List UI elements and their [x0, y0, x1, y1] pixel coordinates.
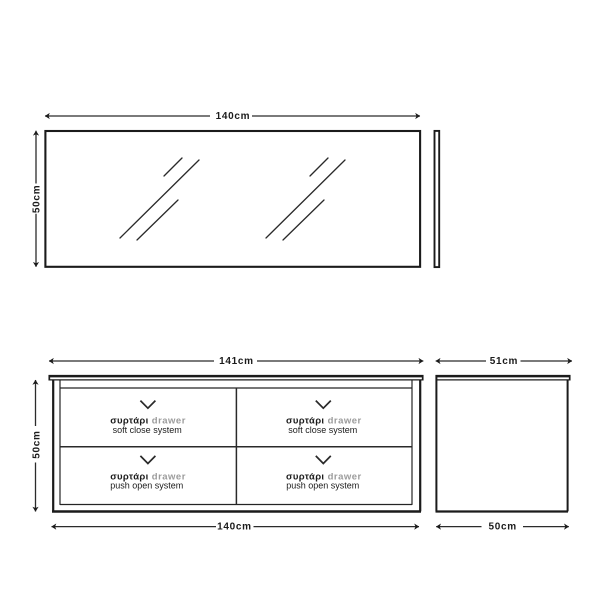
- svg-text:50cm: 50cm: [31, 185, 42, 213]
- svg-text:soft close system: soft close system: [113, 425, 182, 435]
- svg-text:140cm: 140cm: [217, 522, 252, 533]
- svg-text:50cm: 50cm: [489, 522, 517, 533]
- svg-text:50cm: 50cm: [31, 430, 42, 458]
- svg-text:soft close system: soft close system: [288, 425, 357, 435]
- svg-text:140cm: 140cm: [216, 111, 251, 122]
- svg-text:51cm: 51cm: [490, 356, 518, 367]
- svg-text:push open system: push open system: [286, 481, 359, 491]
- svg-text:141cm: 141cm: [219, 356, 254, 367]
- svg-text:push open system: push open system: [110, 481, 183, 491]
